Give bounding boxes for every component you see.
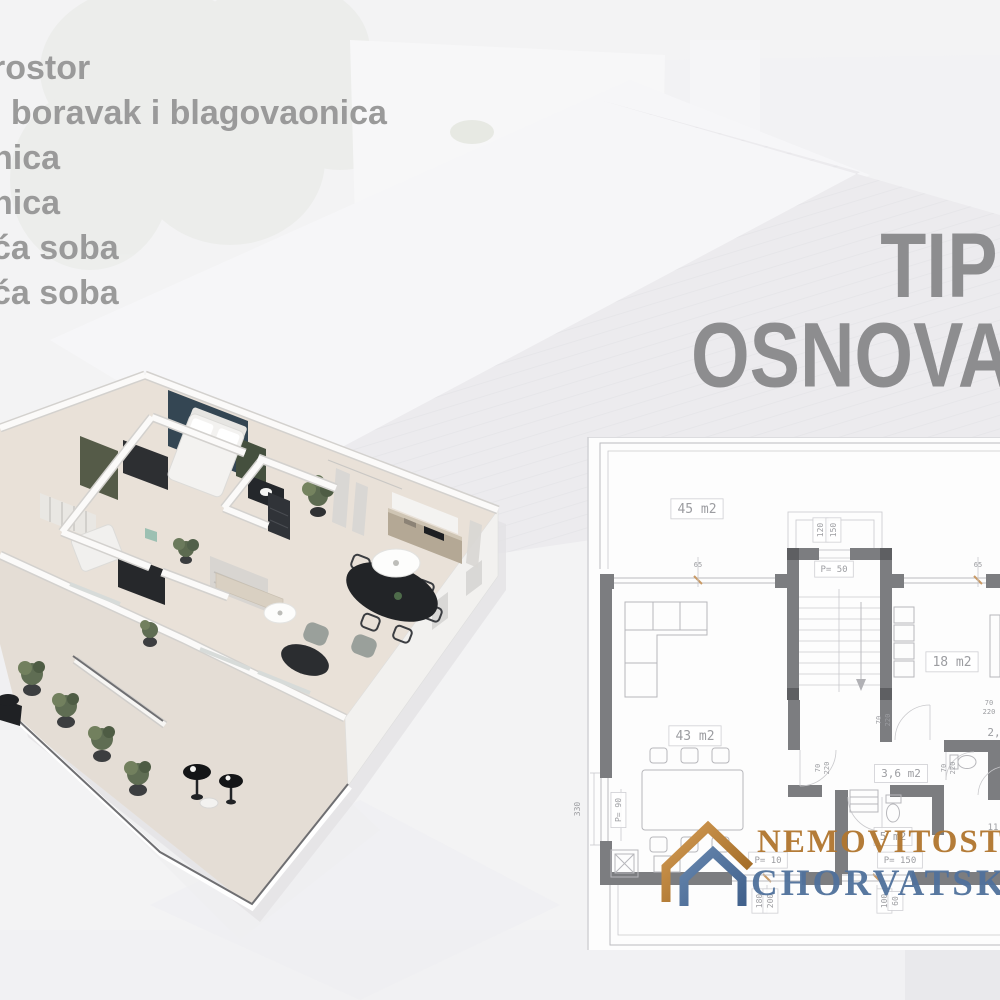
plan-label: 65 [694,561,702,569]
svg-text:70: 70 [940,764,948,772]
terrace-chair [0,694,22,726]
svg-text:70: 70 [985,699,993,707]
plan-label: P= 50 [815,561,854,577]
page-title: TIP OSNOVA [691,222,1000,401]
plan-label: 150 [826,518,841,542]
svg-text:P= 50: P= 50 [820,565,847,575]
plan-label: 65 [974,561,982,569]
plan-label: 220 [983,708,996,716]
svg-text:220: 220 [884,714,892,727]
room-list-item: ća soba [0,271,387,316]
svg-text:3,6 m2: 3,6 m2 [881,767,921,780]
svg-text:150: 150 [829,523,838,538]
marketing-slide: rostori boravak i blagovaonicanicanicaća… [0,0,1000,1000]
svg-text:65: 65 [694,561,702,569]
svg-text:70: 70 [875,716,883,724]
svg-text:18 m2: 18 m2 [932,655,971,670]
plan-label: 220 [884,714,892,727]
svg-text:220: 220 [983,708,996,716]
room-list-item: ća soba [0,226,387,271]
svg-text:P= 90: P= 90 [614,798,623,822]
plan-label: P= 90 [611,792,626,827]
svg-text:43 m2: 43 m2 [675,729,714,744]
plan-label: 330 [573,802,582,817]
svg-text:65: 65 [974,561,982,569]
nemovitosti-chorvatsko-logo-icon [656,812,760,908]
room-list: rostori boravak i blagovaonicanicanicaća… [0,46,387,361]
svg-text:220: 220 [949,762,957,775]
plan-label: 70 [875,716,883,724]
svg-text:45 m2: 45 m2 [677,502,716,517]
room-list-item: nica [0,136,387,181]
heading-tip: TIP [691,222,998,312]
svg-text:2,: 2, [987,726,1000,739]
plan-label: 45 m2 [671,499,723,519]
apartment-3d-render [0,360,540,940]
plan-label: 3,6 m2 [875,764,928,782]
plan-label: 2, [987,726,1000,739]
logo-text-blue: CHORVATSKO [751,862,1000,905]
room-list-item: nica [0,181,387,226]
logo-text-gold: NEMOVITOST [757,824,1000,861]
plan-label: 18 m2 [926,652,978,672]
plan-label: 43 m2 [669,726,721,746]
heading-osnova: OSNOVA [691,312,1000,402]
room-list-item: i boravak i blagovaonica [0,91,387,136]
svg-text:70: 70 [814,764,822,772]
svg-text:120: 120 [816,523,825,538]
plan-label: 70 [985,699,993,707]
plan-label: 220 [949,762,957,775]
svg-text:330: 330 [573,802,582,817]
svg-text:220: 220 [823,762,831,775]
plan-label: 220 [823,762,831,775]
plan-label: 70 [814,764,822,772]
plan-label: 70 [940,764,948,772]
room-list-item: rostor [0,46,387,91]
room-list-item: a [0,316,387,361]
